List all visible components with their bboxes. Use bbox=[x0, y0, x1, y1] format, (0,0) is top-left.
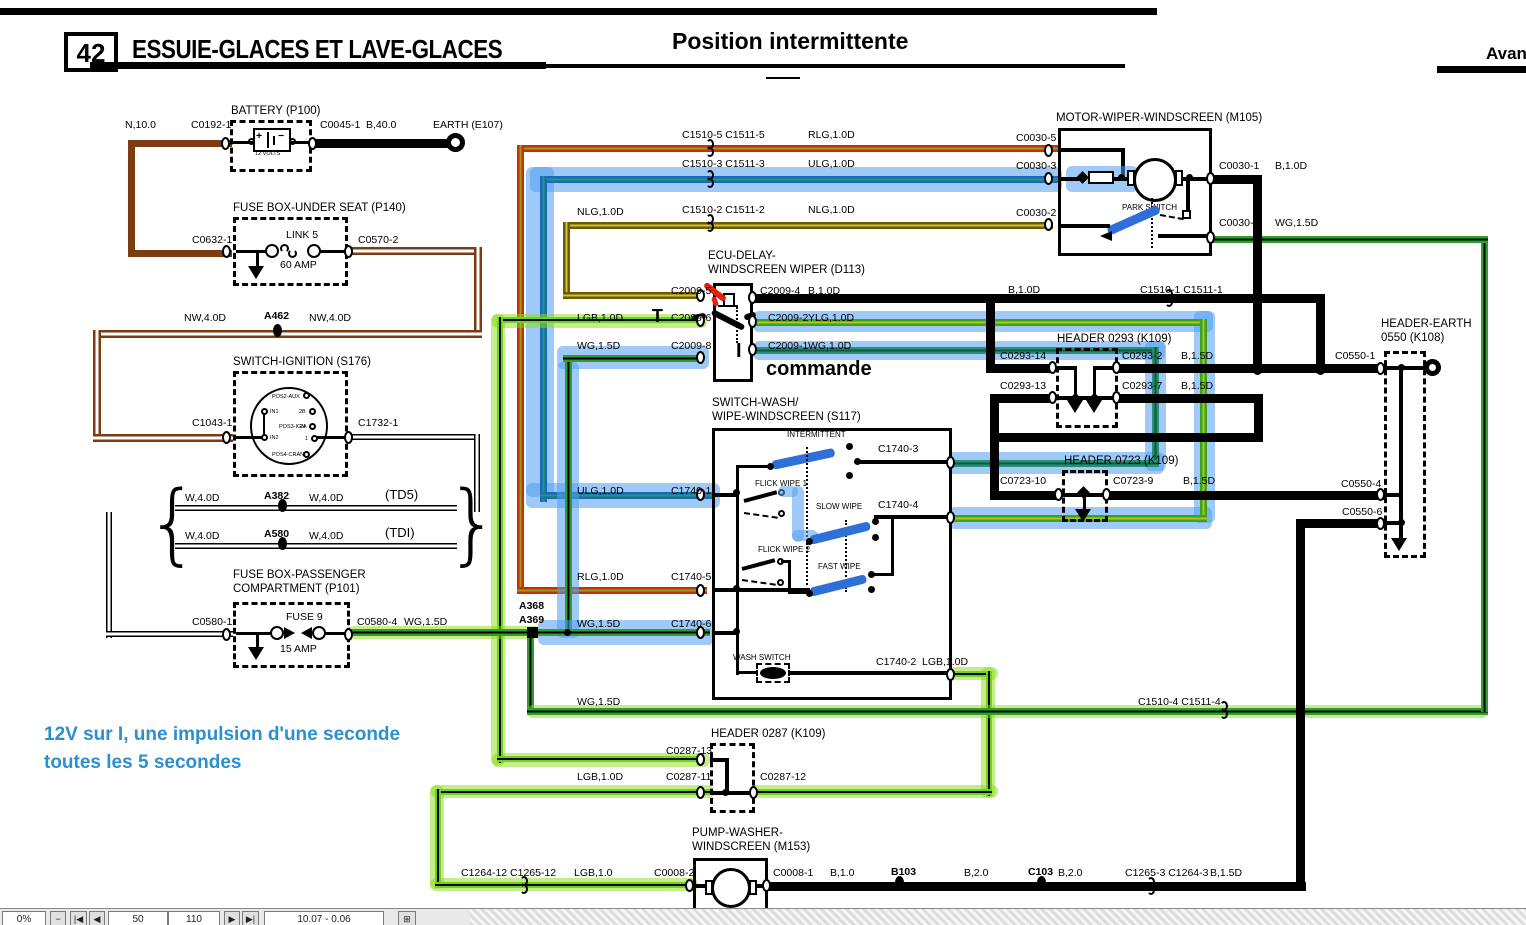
s117-ln6 bbox=[874, 515, 952, 519]
label-wg15d-sw: WG,1.5D bbox=[577, 618, 620, 630]
label-c0030-1: C0030-1 bbox=[1219, 160, 1259, 172]
label-b15d-a: B,1.5D bbox=[1181, 350, 1213, 362]
ign-2a: 2A bbox=[300, 424, 307, 430]
pin-c0293-14 bbox=[1048, 361, 1057, 374]
s117-mech-link1 bbox=[806, 447, 808, 585]
s117-fast-label: FAST WIPE bbox=[818, 562, 861, 571]
annotation-note-line1: 12V sur I, une impulsion d'une seconde bbox=[44, 724, 400, 746]
label-b15d-b: B,1.5D bbox=[1181, 380, 1213, 392]
wire-wg-h2 bbox=[533, 629, 710, 636]
wire-w-td5 bbox=[175, 505, 457, 511]
ecu-pulse-base bbox=[718, 305, 738, 307]
pin-c1043-1 bbox=[222, 431, 231, 444]
junction-square-wg bbox=[527, 627, 538, 638]
label-c1740-3: C1740-3 bbox=[878, 443, 918, 455]
pin-c0293-7 bbox=[1112, 391, 1121, 404]
label-w40d-d: W,4.0D bbox=[309, 530, 343, 542]
label-nw40d-b: NW,4.0D bbox=[309, 312, 351, 324]
wire-nlg-h1 bbox=[563, 222, 1053, 229]
label-tdi: (TDI) bbox=[385, 525, 415, 540]
ign-2b: 2B bbox=[299, 409, 306, 415]
intermittent-contact1 bbox=[846, 443, 853, 450]
wire-w-h1 bbox=[348, 434, 478, 440]
wire-b-h4 bbox=[1118, 394, 1263, 403]
label-lgb-pump: LGB,1.0 bbox=[574, 867, 613, 879]
motor-ln7 bbox=[1158, 234, 1210, 238]
ign-lead-r bbox=[317, 436, 345, 439]
pump-title: PUMP-WASHER- WINDSCREEN (M153) bbox=[692, 827, 810, 855]
pin-c0030-2 bbox=[1044, 218, 1053, 231]
status-hatch bbox=[470, 909, 1526, 925]
label-c0550-1: C0550-1 bbox=[1335, 350, 1375, 362]
pin-c0293-13 bbox=[1048, 391, 1057, 404]
motor-ln1 bbox=[1058, 148, 1124, 152]
ign-one: 1 bbox=[305, 436, 308, 442]
motor-circle bbox=[1133, 158, 1177, 202]
junction-wg-tee bbox=[564, 629, 571, 636]
earth-ring-k108 bbox=[1424, 359, 1441, 376]
annotation-note-line2: toutes les 5 secondes bbox=[44, 752, 241, 774]
motor-ln8 bbox=[1058, 224, 1110, 228]
label-rlg-sw: RLG,1.0D bbox=[577, 571, 624, 583]
nav-next-button[interactable]: ▶ bbox=[224, 911, 240, 925]
header-0723-title: HEADER 0723 (K109) bbox=[1064, 455, 1178, 469]
label-b10d-mot: B,1.0D bbox=[1275, 160, 1307, 172]
pin-c2009-4 bbox=[748, 291, 757, 304]
wire-nw-v2 bbox=[93, 330, 101, 442]
wire-wg-v2 bbox=[1481, 240, 1488, 712]
wire-b-h8 bbox=[1108, 491, 1384, 500]
motor-brush-r bbox=[1175, 170, 1183, 186]
fuse9-lead-l bbox=[236, 632, 272, 635]
pump-brush-l bbox=[705, 880, 713, 895]
subtitle-underline bbox=[766, 77, 800, 79]
wire-n-v1 bbox=[128, 140, 135, 257]
wire-b-h3 bbox=[1118, 364, 1384, 373]
k108-ring-lead bbox=[1403, 366, 1425, 370]
label-c0192-1: C0192-1 bbox=[191, 119, 231, 131]
wire-b-h6 bbox=[990, 394, 1052, 403]
battery-title: BATTERY (P100) bbox=[231, 105, 320, 119]
slow-contact1 bbox=[872, 518, 879, 525]
pin-c0287-11 bbox=[696, 786, 705, 799]
label-c0550-6: C0550-6 bbox=[1342, 506, 1382, 518]
wire-b-h2 bbox=[986, 364, 1052, 373]
label-n100: N,10.0 bbox=[125, 119, 156, 131]
wire-wg8-h bbox=[563, 355, 703, 362]
h0287-dot bbox=[722, 789, 729, 796]
label-c1510-4: C1510-4 C1511-4 bbox=[1138, 696, 1221, 708]
wire-ulg-v1 bbox=[540, 176, 547, 502]
k108-ln2 bbox=[1384, 493, 1402, 497]
wire-rlg-h1 bbox=[520, 145, 1058, 152]
label-c0008-1: C0008-1 bbox=[773, 867, 813, 879]
corner-rule bbox=[1437, 66, 1526, 73]
splice-c1510-3 bbox=[706, 170, 715, 188]
label-nlg-l: NLG,1.0D bbox=[577, 206, 624, 218]
label-wg15d-ecu: WG,1.5D bbox=[577, 340, 620, 352]
top-rule bbox=[0, 8, 1157, 15]
motor-dot2 bbox=[1186, 174, 1193, 181]
pin-c0550-6 bbox=[1376, 517, 1385, 530]
label-c0287-11: C0287-11 bbox=[666, 771, 711, 783]
label-c2009-1: C2009-1 bbox=[768, 340, 808, 352]
pin-c1740-2 bbox=[946, 668, 955, 681]
label-a580: A580 bbox=[264, 528, 289, 540]
battery-plus: + bbox=[256, 130, 262, 142]
label-ulg-sw: ULG,1.0D bbox=[577, 485, 624, 497]
wire-b-batt bbox=[312, 139, 452, 148]
label-b20-b: B,2.0 bbox=[1058, 867, 1083, 879]
label-c2009-5: C2009-5 bbox=[671, 285, 711, 297]
link5-circle-l bbox=[265, 244, 279, 258]
fast-contact2 bbox=[868, 586, 875, 593]
nav-prev-button[interactable]: ◀ bbox=[89, 911, 105, 925]
s117-dot3 bbox=[733, 628, 740, 635]
label-ulg-top: ULG,1.0D bbox=[808, 158, 855, 170]
label-c0008-2: C0008-2 bbox=[654, 867, 694, 879]
junction-a462 bbox=[273, 324, 282, 337]
pin-c1732-1 bbox=[344, 431, 353, 444]
battery-plate2 bbox=[273, 136, 275, 145]
label-c1740-5: C1740-5 bbox=[671, 571, 711, 583]
link5-amp: 60 AMP bbox=[280, 259, 317, 271]
label-w40d-a: W,4.0D bbox=[185, 492, 219, 504]
pin-c0008-1 bbox=[762, 879, 771, 892]
label-c2009-8: C2009-8 bbox=[671, 340, 711, 352]
label-b10d-ecu: B,1.0D bbox=[808, 285, 840, 297]
junction-b-tee1 bbox=[985, 294, 994, 303]
label-c1264-12: C1264-12 C1265-12 bbox=[461, 867, 556, 879]
wire-lgb-v1 bbox=[497, 317, 503, 763]
wire-b-v7 bbox=[1296, 519, 1305, 886]
pin-c0030-1 bbox=[1206, 172, 1215, 185]
annotation-T: T bbox=[652, 306, 663, 327]
label-a369: A369 bbox=[519, 614, 544, 626]
label-nlg-r: NLG,1.0D bbox=[808, 204, 855, 216]
gnd-arrow-0293a bbox=[1067, 400, 1083, 413]
pump-circle bbox=[711, 868, 751, 908]
label-a462: A462 bbox=[264, 310, 289, 322]
label-wg15d-mot: WG,1.5D bbox=[1275, 217, 1318, 229]
range-start-box[interactable]: 50 bbox=[108, 911, 168, 925]
k108-box bbox=[1384, 351, 1426, 558]
motor-title: MOTOR-WIPER-WINDSCREEN (M105) bbox=[1056, 112, 1262, 126]
s117-intermittent-label: INTERMITTENT bbox=[787, 430, 846, 439]
s117-wash-label: WASH SWITCH bbox=[733, 653, 790, 662]
ign-in2: IN2 bbox=[270, 435, 279, 441]
pin-c2009-8 bbox=[696, 351, 705, 364]
pin-c0632-1 bbox=[222, 245, 231, 258]
fuse9-bow-l bbox=[284, 627, 295, 639]
wire-b-v6 bbox=[990, 433, 999, 499]
gnd-arrow-0293b bbox=[1086, 400, 1102, 413]
grid-button[interactable]: ⊞ bbox=[398, 911, 416, 925]
title-underline-2 bbox=[546, 64, 1125, 68]
wire-n-h2 bbox=[128, 250, 232, 257]
label-wg15d-fuse: WG,1.5D bbox=[404, 616, 447, 628]
ign-pin-2b bbox=[309, 408, 316, 415]
wire-wg-h3 bbox=[527, 708, 1488, 715]
k108-title: HEADER-EARTH 0550 (K108) bbox=[1381, 318, 1472, 346]
label-c0580-1: C0580-1 bbox=[192, 616, 232, 628]
label-c0030-2: C0030-2 bbox=[1016, 207, 1056, 219]
label-b400: B,40.0 bbox=[366, 119, 396, 131]
page-title: ESSUIE-GLACES ET LAVE-GLACES bbox=[132, 34, 502, 65]
s117-ln12 bbox=[736, 635, 739, 675]
s117-ln5 bbox=[856, 460, 952, 464]
label-c1510-3: C1510-3 C1511-3 bbox=[682, 158, 765, 170]
slow-pivot bbox=[806, 538, 813, 545]
intermittent-contact3 bbox=[846, 472, 853, 479]
label-c1740-2: C1740-2 bbox=[876, 656, 916, 668]
label-w40d-c: W,4.0D bbox=[185, 530, 219, 542]
label-b10d-mid: B,1.0D bbox=[1008, 284, 1040, 296]
label-c0030-4: C0030-4 bbox=[1219, 217, 1259, 229]
label-ylg-ecu: YLG,1.0D bbox=[808, 312, 854, 324]
label-c1265-3: C1265-3 C1264-3 bbox=[1125, 867, 1208, 879]
gnd-stem-f1 bbox=[256, 252, 259, 267]
gnd-arrow-f9 bbox=[248, 647, 264, 660]
motor-dot1 bbox=[1118, 174, 1125, 181]
wire-b-v3 bbox=[1253, 175, 1262, 373]
k108-v bbox=[1399, 368, 1403, 522]
motor-brush-l bbox=[1127, 170, 1135, 186]
label-lgb-sw: LGB,1.0D bbox=[922, 656, 968, 668]
wire-w-v2 bbox=[106, 512, 112, 638]
wire-w-h2 bbox=[106, 631, 233, 637]
pin-c0723-10 bbox=[1054, 488, 1063, 501]
wire-nw-h1 bbox=[348, 247, 480, 255]
gnd-arrow-0723 bbox=[1075, 509, 1091, 522]
label-c1510-2: C1510-2 C1511-2 bbox=[682, 204, 765, 216]
label-c0045-1: C0045-1 bbox=[320, 119, 360, 131]
pin-c0287-12 bbox=[749, 786, 758, 799]
header-0287-title: HEADER 0287 (K109) bbox=[711, 728, 825, 742]
park-blade-arrow bbox=[1100, 231, 1112, 241]
flick2-contact2 bbox=[777, 579, 784, 586]
s117-dot2 bbox=[733, 585, 740, 592]
junction-b-tee3 bbox=[1316, 366, 1325, 375]
pin-c0570-2 bbox=[344, 245, 353, 258]
wire-wg-h1 bbox=[350, 629, 533, 636]
link5-wave2 bbox=[288, 249, 297, 258]
label-c0723-10: C0723-10 bbox=[1000, 475, 1046, 487]
wire-nw-h2 bbox=[93, 330, 482, 338]
s117-ln13 bbox=[736, 671, 758, 674]
label-w40d-b: W,4.0D bbox=[309, 492, 343, 504]
pin-c0580-4 bbox=[344, 628, 353, 641]
label-c1510-5: C1510-5 C1511-5 bbox=[682, 129, 765, 141]
label-c0632-1: C0632-1 bbox=[192, 234, 232, 246]
label-c0030-5: C0030-5 bbox=[1016, 132, 1056, 144]
battery-minus: − bbox=[278, 130, 284, 142]
wire-b-v1 bbox=[1316, 294, 1325, 370]
wash-switch-oval bbox=[760, 667, 786, 679]
ecu-pulse-r bbox=[733, 293, 735, 307]
pin-c0580-1 bbox=[222, 628, 231, 641]
motor-resistor bbox=[1088, 171, 1114, 184]
s117-flick2-label: FLICK WIPE 2 bbox=[758, 545, 810, 554]
nav-last-button[interactable]: ▶| bbox=[242, 911, 259, 925]
label-c1510-1: C1510-1 C1511-1 bbox=[1140, 284, 1223, 296]
label-c1043-1: C1043-1 bbox=[192, 417, 232, 429]
junction-b-tee2 bbox=[1253, 366, 1262, 375]
fusebox-underseat-title: FUSE BOX-UNDER SEAT (P140) bbox=[233, 202, 406, 216]
label-c0287-12: C0287-12 bbox=[760, 771, 806, 783]
label-lgb-ecu: LGB,1.0D bbox=[577, 312, 623, 324]
label-b15d-c: B,1.5D bbox=[1183, 475, 1215, 487]
label-wg10d-ecu: WG,1.0D bbox=[808, 340, 851, 352]
s117-ln8 bbox=[788, 560, 791, 594]
header-0287-box bbox=[710, 743, 755, 813]
ign-lead-l bbox=[236, 436, 262, 439]
link5-lead-r bbox=[320, 250, 346, 253]
wire-b-h5 bbox=[994, 433, 1263, 442]
wire-lgb-v2 bbox=[986, 671, 992, 796]
pin-c2009-2 bbox=[748, 315, 757, 328]
label-c0030-3: C0030-3 bbox=[1016, 160, 1056, 172]
link5-label: LINK 5 bbox=[286, 229, 318, 241]
ign-pin-in2 bbox=[261, 434, 268, 441]
splice-c1510-2 bbox=[706, 214, 715, 232]
pin-c0293-2 bbox=[1112, 361, 1121, 374]
wiring-diagram-page: 42 ESSUIE-GLACES ET LAVE-GLACES Position… bbox=[0, 0, 1526, 925]
wire-lgb-h6 bbox=[435, 882, 693, 888]
label-a368: A368 bbox=[519, 600, 544, 612]
pin-c0030-5 bbox=[1044, 144, 1053, 157]
ignition-title: SWITCH-IGNITION (S176) bbox=[233, 356, 371, 370]
s117-dot1 bbox=[733, 489, 740, 496]
label-b10-pump: B,1.0 bbox=[830, 867, 855, 879]
annotation-commande: commande bbox=[766, 358, 872, 381]
wire-b-h7 bbox=[990, 491, 1058, 500]
pin-c1740-5 bbox=[696, 584, 705, 597]
ign-pin-pos2 bbox=[303, 392, 310, 399]
label-c0293-2: C0293-2 bbox=[1122, 350, 1162, 362]
flick1-contact2 bbox=[778, 510, 785, 517]
label-b20-a: B,2.0 bbox=[964, 867, 989, 879]
range-end-box[interactable]: 110 bbox=[168, 911, 220, 925]
k108-dot1 bbox=[1398, 364, 1405, 371]
s117-ln11 bbox=[891, 517, 894, 575]
label-c0550-4: C0550-4 bbox=[1341, 478, 1381, 490]
nav-first-button[interactable]: |◀ bbox=[70, 911, 87, 925]
label-earth-e107: EARTH (E107) bbox=[433, 119, 503, 131]
splice-c1510-5 bbox=[706, 139, 715, 157]
gnd-arrow-k108 bbox=[1391, 538, 1407, 551]
ign-in1: IN1 bbox=[270, 409, 279, 415]
wire-b-h9 bbox=[1296, 519, 1384, 528]
battery-lead-r bbox=[291, 141, 309, 144]
gnd-arrow-f1 bbox=[248, 266, 264, 279]
pin-c0030-3 bbox=[1044, 172, 1053, 185]
wire-rlg-v1 bbox=[517, 145, 524, 594]
link5-lead-l bbox=[236, 250, 268, 253]
annotation-I: I bbox=[736, 340, 742, 363]
pin-c0045-1 bbox=[308, 137, 317, 150]
ign-pin-pos4 bbox=[303, 451, 310, 458]
label-c2009-2: C2009-2 bbox=[768, 312, 808, 324]
header-0293-title: HEADER 0293 (K109) bbox=[1057, 333, 1171, 347]
pin-c1740-4 bbox=[946, 511, 955, 524]
label-wg15d-low: WG,1.5D bbox=[577, 696, 620, 708]
label-c0570-2: C0570-2 bbox=[358, 234, 398, 246]
wire-nw-h3 bbox=[93, 434, 233, 442]
label-c0293-14: C0293-14 bbox=[1000, 350, 1046, 362]
wire-rlg-h2 bbox=[517, 587, 707, 594]
fuse9-label: FUSE 9 bbox=[286, 611, 323, 623]
wire-lgb-v3 bbox=[435, 789, 441, 888]
wire-b-v2 bbox=[986, 294, 995, 370]
s117-slow-label: SLOW WIPE bbox=[816, 502, 862, 511]
label-c103: C103 bbox=[1028, 866, 1053, 878]
zoom-box[interactable]: 0% bbox=[2, 911, 46, 925]
pin-c0192-1 bbox=[221, 137, 230, 150]
label-c0293-7: C0293-7 bbox=[1122, 380, 1162, 392]
ign-pin-2a bbox=[309, 423, 316, 430]
brace-left: { bbox=[146, 472, 199, 575]
label-c0293-13: C0293-13 bbox=[1000, 380, 1046, 392]
wire-w-tdi bbox=[175, 543, 457, 549]
pin-c0030-4 bbox=[1206, 231, 1215, 244]
wire-wg-v1 bbox=[527, 638, 534, 712]
label-c0287-13: C0287-13 bbox=[666, 745, 712, 757]
label-c1740-6: C1740-6 bbox=[671, 618, 711, 630]
label-rlg-top: RLG,1.0D bbox=[808, 129, 855, 141]
splice-c1265-3 bbox=[1147, 877, 1156, 895]
ign-pos2: POS2-AUX bbox=[272, 394, 300, 400]
fuse9-amp: 15 AMP bbox=[280, 643, 317, 655]
battery-lead-l bbox=[232, 141, 253, 144]
ign-link-line bbox=[263, 414, 265, 435]
fuse9-bow-r bbox=[301, 627, 312, 639]
wire-ulg-h1 bbox=[540, 176, 1058, 183]
minus-button[interactable]: − bbox=[50, 911, 66, 925]
label-c1732-1: C1732-1 bbox=[358, 417, 398, 429]
label-c1740-1: C1740-1 bbox=[671, 485, 711, 497]
label-b103: B103 bbox=[891, 866, 916, 878]
corner-label: Avant bbox=[1486, 44, 1526, 64]
label-a382: A382 bbox=[264, 490, 289, 502]
title-underline bbox=[90, 62, 546, 69]
label-b15d-d: B,1.5D bbox=[1210, 867, 1242, 879]
earth-ring-e107 bbox=[446, 133, 465, 152]
fuse9-circle-l bbox=[270, 626, 284, 640]
fusebox-passenger-title: FUSE BOX-PASSENGER COMPARTMENT (P101) bbox=[233, 569, 366, 597]
wire-n-h1 bbox=[132, 140, 232, 147]
pump-brush-r bbox=[749, 880, 757, 895]
battery-volts: 12 VOLTS bbox=[255, 151, 280, 157]
pin-c1740-3 bbox=[946, 456, 955, 469]
ecu-pulse-top bbox=[723, 293, 734, 295]
slow-contact2 bbox=[872, 534, 879, 541]
ecu-title: ECU-DELAY- WINDSCREEN WIPER (D113) bbox=[708, 250, 865, 278]
label-lgb-hdr: LGB,1.0D bbox=[577, 771, 623, 783]
label-c2009-4: C2009-4 bbox=[760, 285, 800, 297]
label-nw40d-a: NW,4.0D bbox=[184, 312, 226, 324]
pin-c0008-2 bbox=[685, 879, 694, 892]
label-td5: (TD5) bbox=[385, 487, 418, 502]
coords-box: 10.07 - 0.06 bbox=[264, 911, 384, 925]
fuse9-circle-r bbox=[312, 626, 326, 640]
s117-title: SWITCH-WASH/ WIPE-WINDSCREEN (S117) bbox=[712, 397, 861, 425]
link5-circle-r bbox=[307, 244, 321, 258]
label-c0723-9: C0723-9 bbox=[1113, 475, 1153, 487]
wire-lgb-h5 bbox=[437, 789, 710, 795]
label-c1740-4: C1740-4 bbox=[878, 499, 918, 511]
wire-nlg-v1 bbox=[563, 222, 570, 299]
